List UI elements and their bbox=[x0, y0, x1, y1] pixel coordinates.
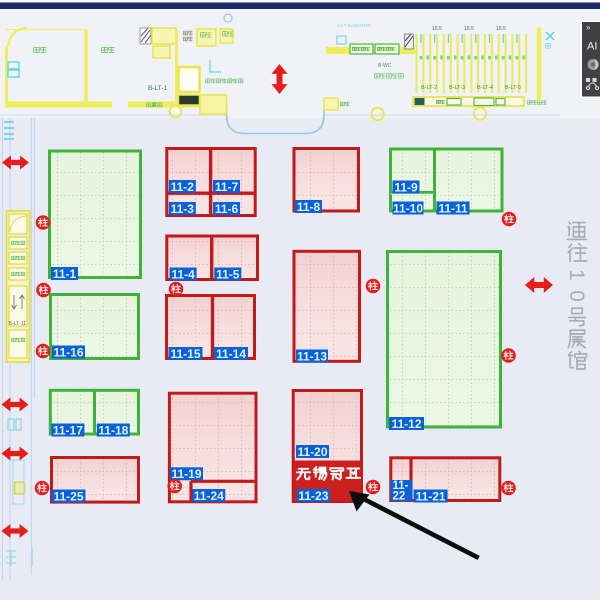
svg-text:11-1: 11-1 bbox=[53, 267, 77, 281]
svg-text:11-16: 11-16 bbox=[53, 345, 83, 359]
svg-text:11-8: 11-8 bbox=[297, 200, 321, 214]
svg-text:11-25: 11-25 bbox=[53, 489, 83, 503]
svg-text:11-20: 11-20 bbox=[297, 445, 327, 459]
svg-text:11-23: 11-23 bbox=[298, 489, 328, 503]
svg-text:10.5: 10.5 bbox=[432, 26, 442, 32]
svg-text:B-LT-3: B-LT-3 bbox=[449, 85, 465, 91]
svg-text:AJ-T-RADIATOR: AJ-T-RADIATOR bbox=[337, 23, 371, 28]
svg-text:1: 1 bbox=[565, 269, 588, 281]
svg-text:B-LT-11: B-LT-11 bbox=[9, 321, 27, 327]
svg-text:11-21: 11-21 bbox=[416, 489, 446, 503]
svg-text:11-6: 11-6 bbox=[215, 202, 239, 216]
svg-text:11-18: 11-18 bbox=[98, 423, 128, 437]
svg-text:11-7: 11-7 bbox=[215, 180, 239, 194]
svg-text:B-LT-4: B-LT-4 bbox=[477, 85, 493, 91]
svg-text:B-WC: B-WC bbox=[378, 63, 392, 69]
svg-text:11-5: 11-5 bbox=[216, 267, 240, 281]
svg-text:0: 0 bbox=[565, 290, 588, 302]
svg-text:11-24: 11-24 bbox=[194, 489, 224, 503]
svg-text:11-3: 11-3 bbox=[171, 202, 195, 216]
svg-text:22: 22 bbox=[393, 491, 406, 503]
svg-text:B-LT-2: B-LT-2 bbox=[421, 85, 437, 91]
svg-text:B-LT-1: B-LT-1 bbox=[148, 85, 167, 92]
svg-text:10.5: 10.5 bbox=[464, 26, 474, 32]
svg-text:11-4: 11-4 bbox=[171, 267, 195, 281]
svg-text:11-9: 11-9 bbox=[394, 180, 418, 194]
svg-text:10.5: 10.5 bbox=[496, 26, 506, 32]
svg-text:11-12: 11-12 bbox=[391, 417, 421, 431]
svg-text:11-11: 11-11 bbox=[438, 201, 468, 215]
svg-text:11-2: 11-2 bbox=[171, 180, 195, 194]
svg-text:AI: AI bbox=[587, 41, 597, 53]
svg-text:11-10: 11-10 bbox=[393, 201, 423, 215]
svg-text:B-LT-5: B-LT-5 bbox=[505, 85, 521, 91]
svg-text:11-14: 11-14 bbox=[216, 347, 246, 361]
svg-text:11-15: 11-15 bbox=[170, 347, 200, 361]
svg-text:11-13: 11-13 bbox=[297, 349, 327, 363]
svg-text:»: » bbox=[586, 23, 591, 32]
svg-text:11-17: 11-17 bbox=[53, 423, 83, 437]
